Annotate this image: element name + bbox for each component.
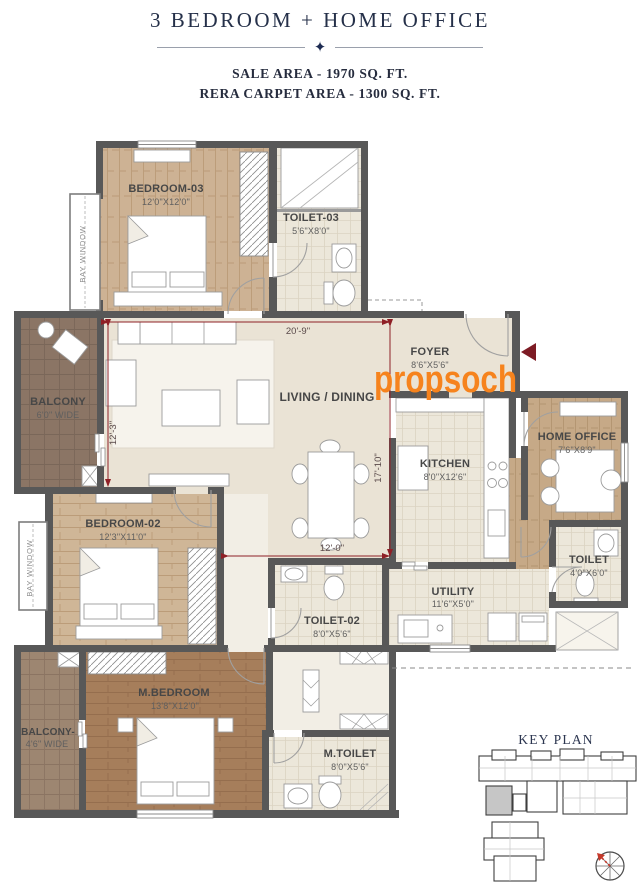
key-plan-highlight-unit: [486, 786, 512, 815]
floor-plan: 20'-9" 12'-3" 17'-10" 12'-0" BEDROOM-03 …: [0, 0, 640, 887]
bay-window-label: BAY WINDOW: [78, 225, 87, 282]
tv-console: [149, 474, 229, 486]
floor-plan-page: { "header": { "title": "3 BEDROOM + HOME…: [0, 0, 640, 887]
washbasin: [284, 784, 312, 808]
duct-outline: [368, 300, 422, 311]
kitchen-counter-hob: [484, 398, 509, 558]
dryer: [519, 613, 547, 641]
room-label-bedroom-02: BEDROOM-02: [85, 518, 160, 530]
room-dims-bedroom-02: 12'3"X11'0": [99, 532, 146, 542]
washing-machine: [488, 613, 516, 641]
utility-sink: [398, 615, 452, 643]
washbasin: [332, 244, 356, 272]
room-label-kitchen: KITCHEN: [420, 458, 470, 470]
coffee-table: [162, 390, 220, 426]
room-dims-bedroom-03: 12'0"X12'0": [142, 197, 190, 207]
room-dims-kitchen: 8'0"X12'6": [424, 472, 467, 482]
slider-utility: [402, 562, 427, 570]
room-label-m-toilet: M.TOILET: [324, 748, 377, 760]
room-dims-balcony-1: 6'0" WIDE: [37, 410, 80, 420]
room-label-toilet-02: TOILET-02: [304, 615, 360, 627]
bed-2: [76, 548, 162, 639]
room-label-foyer: FOYER: [411, 346, 450, 358]
window: [138, 141, 196, 148]
room-dims-utility: 11'6"X5'0": [432, 599, 474, 609]
room-label-toilet-ho: TOILET: [569, 554, 609, 566]
toilet-wc: [319, 776, 341, 808]
shower-3: [281, 148, 358, 208]
ac-ledge-box: [58, 652, 80, 667]
dimension-right: 17'-10": [373, 453, 384, 482]
ledge-hatch: [556, 612, 618, 650]
room-label-balcony-2: BALCONY-: [21, 727, 75, 738]
room-dims-balcony-2: 4'6" WIDE: [26, 739, 69, 749]
wardrobe: [88, 652, 166, 674]
window: [430, 645, 470, 652]
compass-icon: [596, 852, 624, 880]
watermark: propsoch: [374, 359, 517, 401]
entrance-arrow-icon: [521, 343, 536, 361]
balcony-table: [38, 322, 54, 338]
room-dims-toilet-03: 5'6"X8'0": [292, 226, 330, 236]
room-dims-toilet-02: 8'0"X5'6": [313, 629, 351, 639]
dimension-left: 12'-3": [108, 421, 119, 445]
key-plan: KEY PLAN: [479, 732, 636, 881]
toilet-wc: [324, 280, 355, 306]
room-dims-toilet-ho: 4'0"X6'0": [570, 568, 608, 578]
toilet-wc: [324, 566, 344, 600]
room-label-m-bedroom: M.BEDROOM: [138, 687, 209, 699]
dimension-top: 20'-9": [286, 326, 310, 337]
bed-3: [114, 216, 222, 306]
room-label-bedroom-03: BEDROOM-03: [128, 183, 203, 195]
room-label-utility: UTILITY: [432, 586, 475, 598]
bay-window-label: BAY WINDOW: [25, 539, 34, 596]
planter-box: [82, 466, 98, 486]
washbasin: [594, 530, 618, 556]
room-dims-home-office: 7'6"X8'9": [558, 445, 596, 455]
window: [621, 443, 628, 482]
corridor-floor: [224, 494, 268, 652]
wardrobe: [240, 152, 268, 256]
washbasin: [281, 566, 307, 582]
dresser: [134, 150, 190, 162]
room-label-home-office: HOME OFFICE: [538, 431, 617, 443]
room-label-toilet-03: TOILET-03: [283, 212, 339, 224]
room-label-living-dining: LIVING / DINING: [279, 390, 374, 404]
wardrobe: [188, 548, 216, 644]
room-dims-m-bedroom: 13'8"X12'0": [151, 701, 199, 711]
room-label-balcony-1: BALCONY: [30, 396, 86, 408]
key-plan-title: KEY PLAN: [518, 732, 593, 747]
dimension-bottom: 12'-0": [320, 543, 344, 554]
window: [137, 810, 213, 818]
room-dims-m-toilet: 8'0"X5'6": [331, 762, 369, 772]
